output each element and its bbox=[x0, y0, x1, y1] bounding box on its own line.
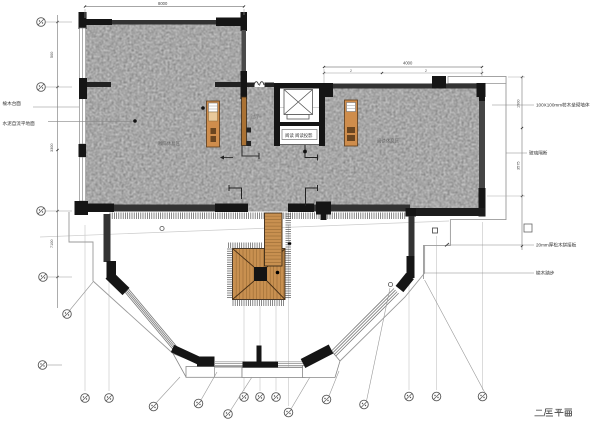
svg-text:2: 2 bbox=[350, 69, 352, 73]
svg-text:7100: 7100 bbox=[50, 240, 54, 248]
svg-text:2: 2 bbox=[425, 69, 427, 73]
svg-text:阅读休息区: 阅读休息区 bbox=[377, 138, 400, 145]
svg-text:咖啡休息区: 咖啡休息区 bbox=[158, 140, 181, 147]
svg-text:阅读 阅读投影: 阅读 阅读投影 bbox=[285, 132, 313, 139]
svg-text:过厅: 过厅 bbox=[251, 113, 259, 120]
svg-text:榆木踏步: 榆木踏步 bbox=[536, 270, 555, 277]
svg-text:3575: 3575 bbox=[517, 162, 521, 170]
svg-text:8000: 8000 bbox=[158, 1, 168, 6]
svg-text:3300: 3300 bbox=[50, 144, 54, 152]
svg-text:1500: 1500 bbox=[517, 100, 521, 108]
svg-text:4000: 4000 bbox=[403, 61, 413, 66]
svg-text:榆木台面: 榆木台面 bbox=[3, 100, 22, 107]
svg-text:500: 500 bbox=[50, 52, 54, 58]
svg-text:玻璃隔断: 玻璃隔断 bbox=[529, 150, 548, 157]
svg-text:水泥自流平地面: 水泥自流平地面 bbox=[3, 120, 36, 127]
svg-text:20mm厚松木拼接板: 20mm厚松木拼接板 bbox=[536, 242, 577, 249]
svg-text:100X100mm枋木垒砌墙体: 100X100mm枋木垒砌墙体 bbox=[536, 102, 590, 109]
